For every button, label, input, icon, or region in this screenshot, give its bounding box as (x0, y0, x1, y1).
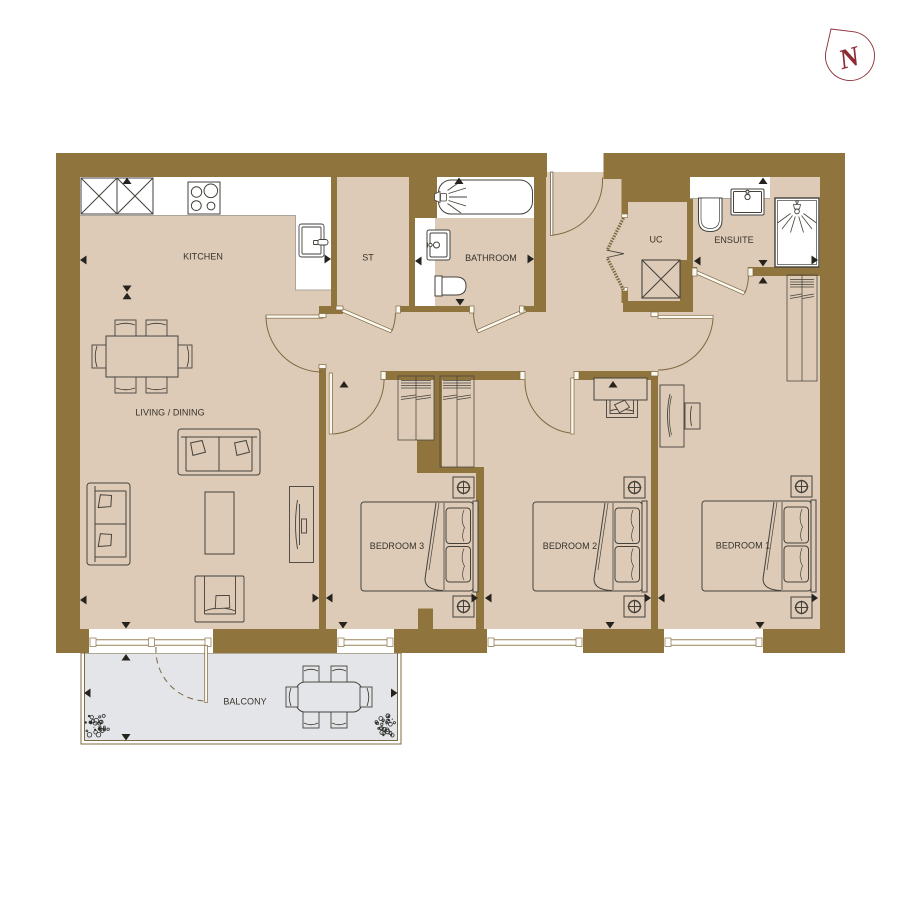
svg-text:BATHROOM: BATHROOM (465, 253, 517, 263)
svg-text:LIVING / DINING: LIVING / DINING (135, 408, 204, 418)
svg-text:ENSUITE: ENSUITE (714, 235, 753, 245)
svg-text:BALCONY: BALCONY (223, 697, 266, 707)
svg-text:BEDROOM 3: BEDROOM 3 (370, 541, 424, 551)
svg-text:BEDROOM 2: BEDROOM 2 (543, 541, 597, 551)
svg-text:KITCHEN: KITCHEN (183, 252, 223, 262)
svg-text:BEDROOM 1: BEDROOM 1 (716, 541, 770, 551)
svg-text:ST: ST (362, 253, 374, 263)
svg-text:UC: UC (649, 235, 663, 245)
